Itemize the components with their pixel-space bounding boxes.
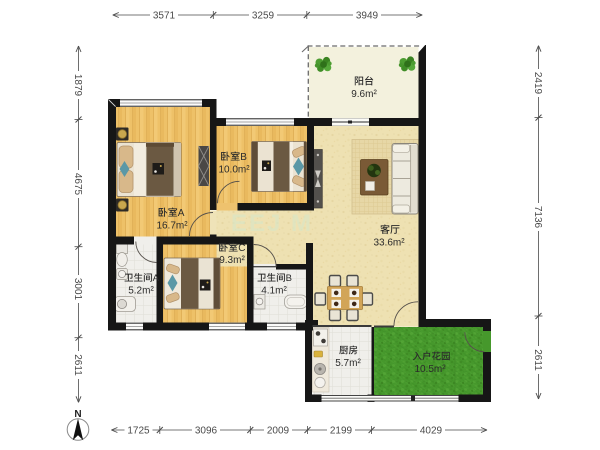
svg-text:33.6m²: 33.6m² (373, 238, 405, 249)
svg-text:N: N (74, 409, 81, 420)
svg-text:10.0m²: 10.0m² (218, 165, 250, 176)
svg-text:B: B (240, 152, 247, 163)
svg-text:4029: 4029 (420, 426, 443, 437)
svg-text:7136: 7136 (532, 206, 543, 229)
svg-text:1725: 1725 (127, 426, 150, 437)
svg-text:3259: 3259 (252, 11, 275, 22)
svg-text:C: C (238, 243, 245, 254)
svg-text:9.3m²: 9.3m² (219, 255, 245, 266)
svg-text:3096: 3096 (195, 426, 218, 437)
svg-text:9.6m²: 9.6m² (351, 89, 377, 100)
svg-text:4.1m²: 4.1m² (261, 286, 287, 297)
svg-text:3001: 3001 (72, 278, 83, 301)
svg-text:2611: 2611 (72, 354, 83, 376)
svg-text:10.5m²: 10.5m² (414, 364, 446, 375)
svg-text:2199: 2199 (330, 426, 353, 437)
svg-text:2419: 2419 (532, 72, 543, 95)
svg-text:EEJ M: EEJ M (231, 210, 313, 237)
svg-text:1879: 1879 (72, 74, 83, 97)
svg-text:A: A (178, 208, 185, 219)
svg-text:2009: 2009 (267, 426, 290, 437)
svg-text:4675: 4675 (72, 173, 83, 196)
svg-text:A: A (153, 273, 160, 284)
svg-text:5.7m²: 5.7m² (335, 358, 361, 369)
svg-text:16.7m²: 16.7m² (156, 221, 188, 232)
svg-text:3571: 3571 (153, 11, 176, 22)
svg-text:2611: 2611 (532, 349, 543, 371)
svg-text:B: B (286, 273, 292, 284)
svg-text:3949: 3949 (356, 11, 379, 22)
svg-text:5.2m²: 5.2m² (128, 286, 154, 297)
